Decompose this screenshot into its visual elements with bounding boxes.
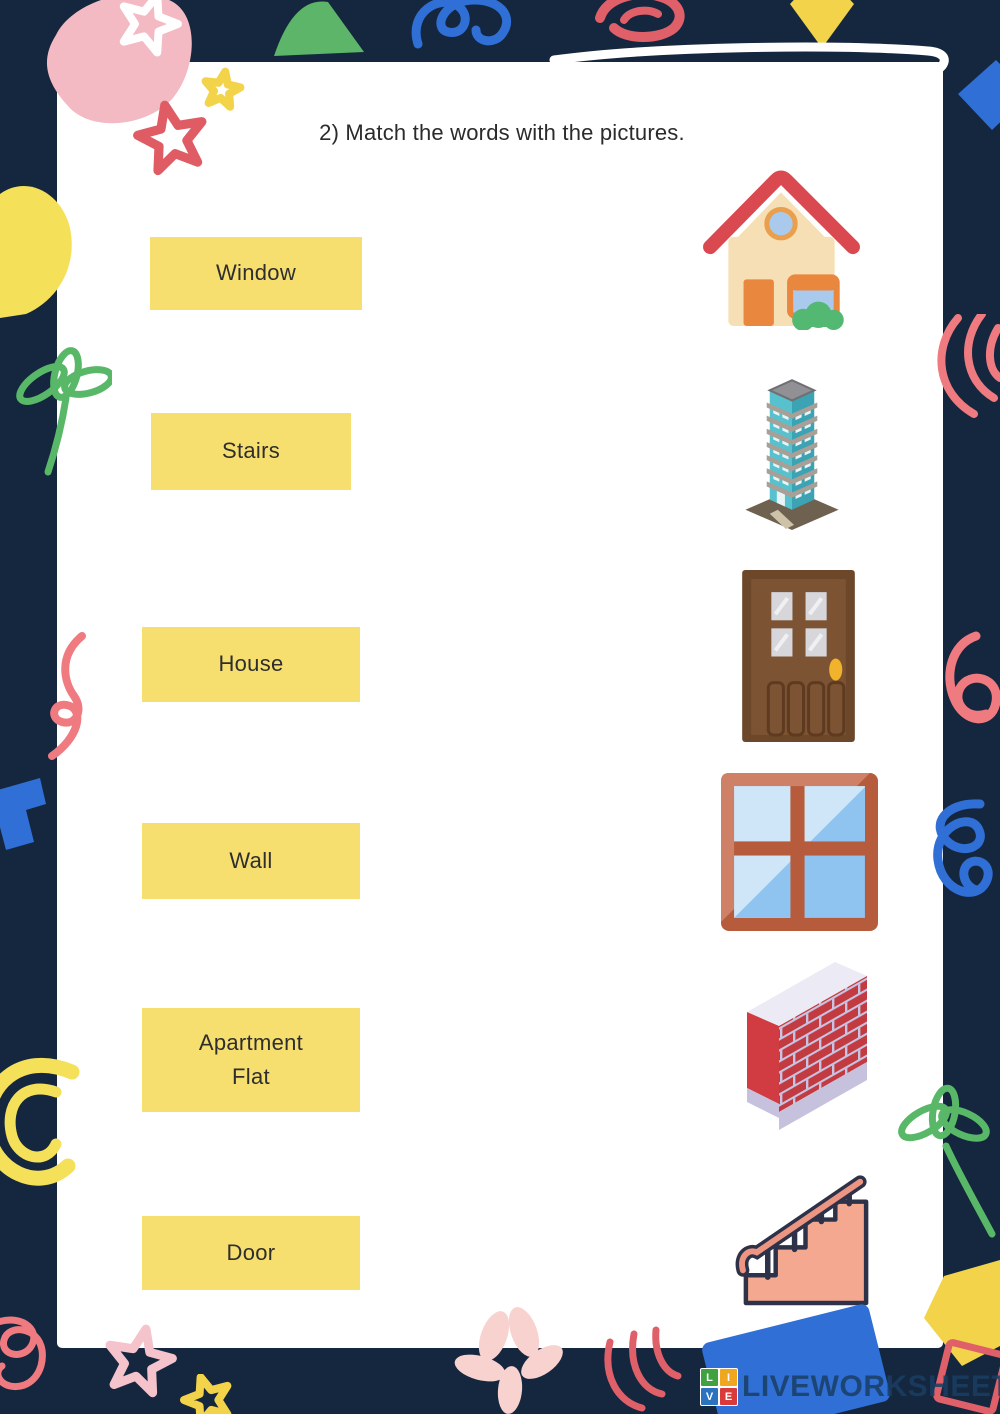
- picture-apartment-building[interactable]: [741, 360, 843, 534]
- apartment-building-icon: [741, 360, 843, 534]
- stairs-icon: [735, 1154, 876, 1308]
- exercise-title: 2) Match the words with the pictures.: [62, 120, 942, 146]
- yellow-star-bottom-icon: [180, 1374, 236, 1414]
- green-triangle-decoration: [266, 0, 368, 60]
- picture-stairs[interactable]: [735, 1154, 876, 1308]
- house-icon: [703, 166, 860, 330]
- word-box-door[interactable]: Door: [142, 1216, 360, 1290]
- logo-letter-i: I: [720, 1369, 737, 1386]
- window-icon: [721, 773, 878, 931]
- word-box-window[interactable]: Window: [150, 237, 362, 310]
- picture-window[interactable]: [721, 773, 878, 931]
- white-star-icon: [113, 0, 184, 56]
- word-box-house[interactable]: House: [142, 627, 360, 702]
- blue-block-decoration: [0, 756, 56, 856]
- door-icon: [742, 570, 855, 742]
- yellow-diamond-decoration: [784, 0, 860, 50]
- word-box-wall[interactable]: Wall: [142, 823, 360, 899]
- picture-house[interactable]: [703, 166, 860, 330]
- picture-brick-wall[interactable]: [739, 950, 875, 1130]
- logo-letter-v: V: [701, 1388, 718, 1405]
- blue-diamond-decoration: [950, 50, 1000, 130]
- word-box-stairs[interactable]: Stairs: [151, 413, 351, 490]
- blue-spiral-doodle: [406, 0, 548, 68]
- logo-letter-e: E: [720, 1388, 737, 1405]
- liveworksheets-watermark: L I V E LIVEWORKSHEETS: [700, 1368, 1000, 1406]
- word-box-apartment-flat[interactable]: Apartment Flat: [142, 1008, 360, 1112]
- watermark-brand-text: LIVEWORKSHEETS: [742, 1370, 1000, 1404]
- brick-wall-icon: [739, 950, 875, 1130]
- pink-scribble-doodle: [942, 626, 1000, 766]
- logo-letter-l: L: [701, 1369, 718, 1386]
- liveworksheets-logo: L I V E: [700, 1368, 738, 1406]
- picture-door[interactable]: [742, 570, 855, 742]
- red-scribble-doodle: [586, 0, 694, 50]
